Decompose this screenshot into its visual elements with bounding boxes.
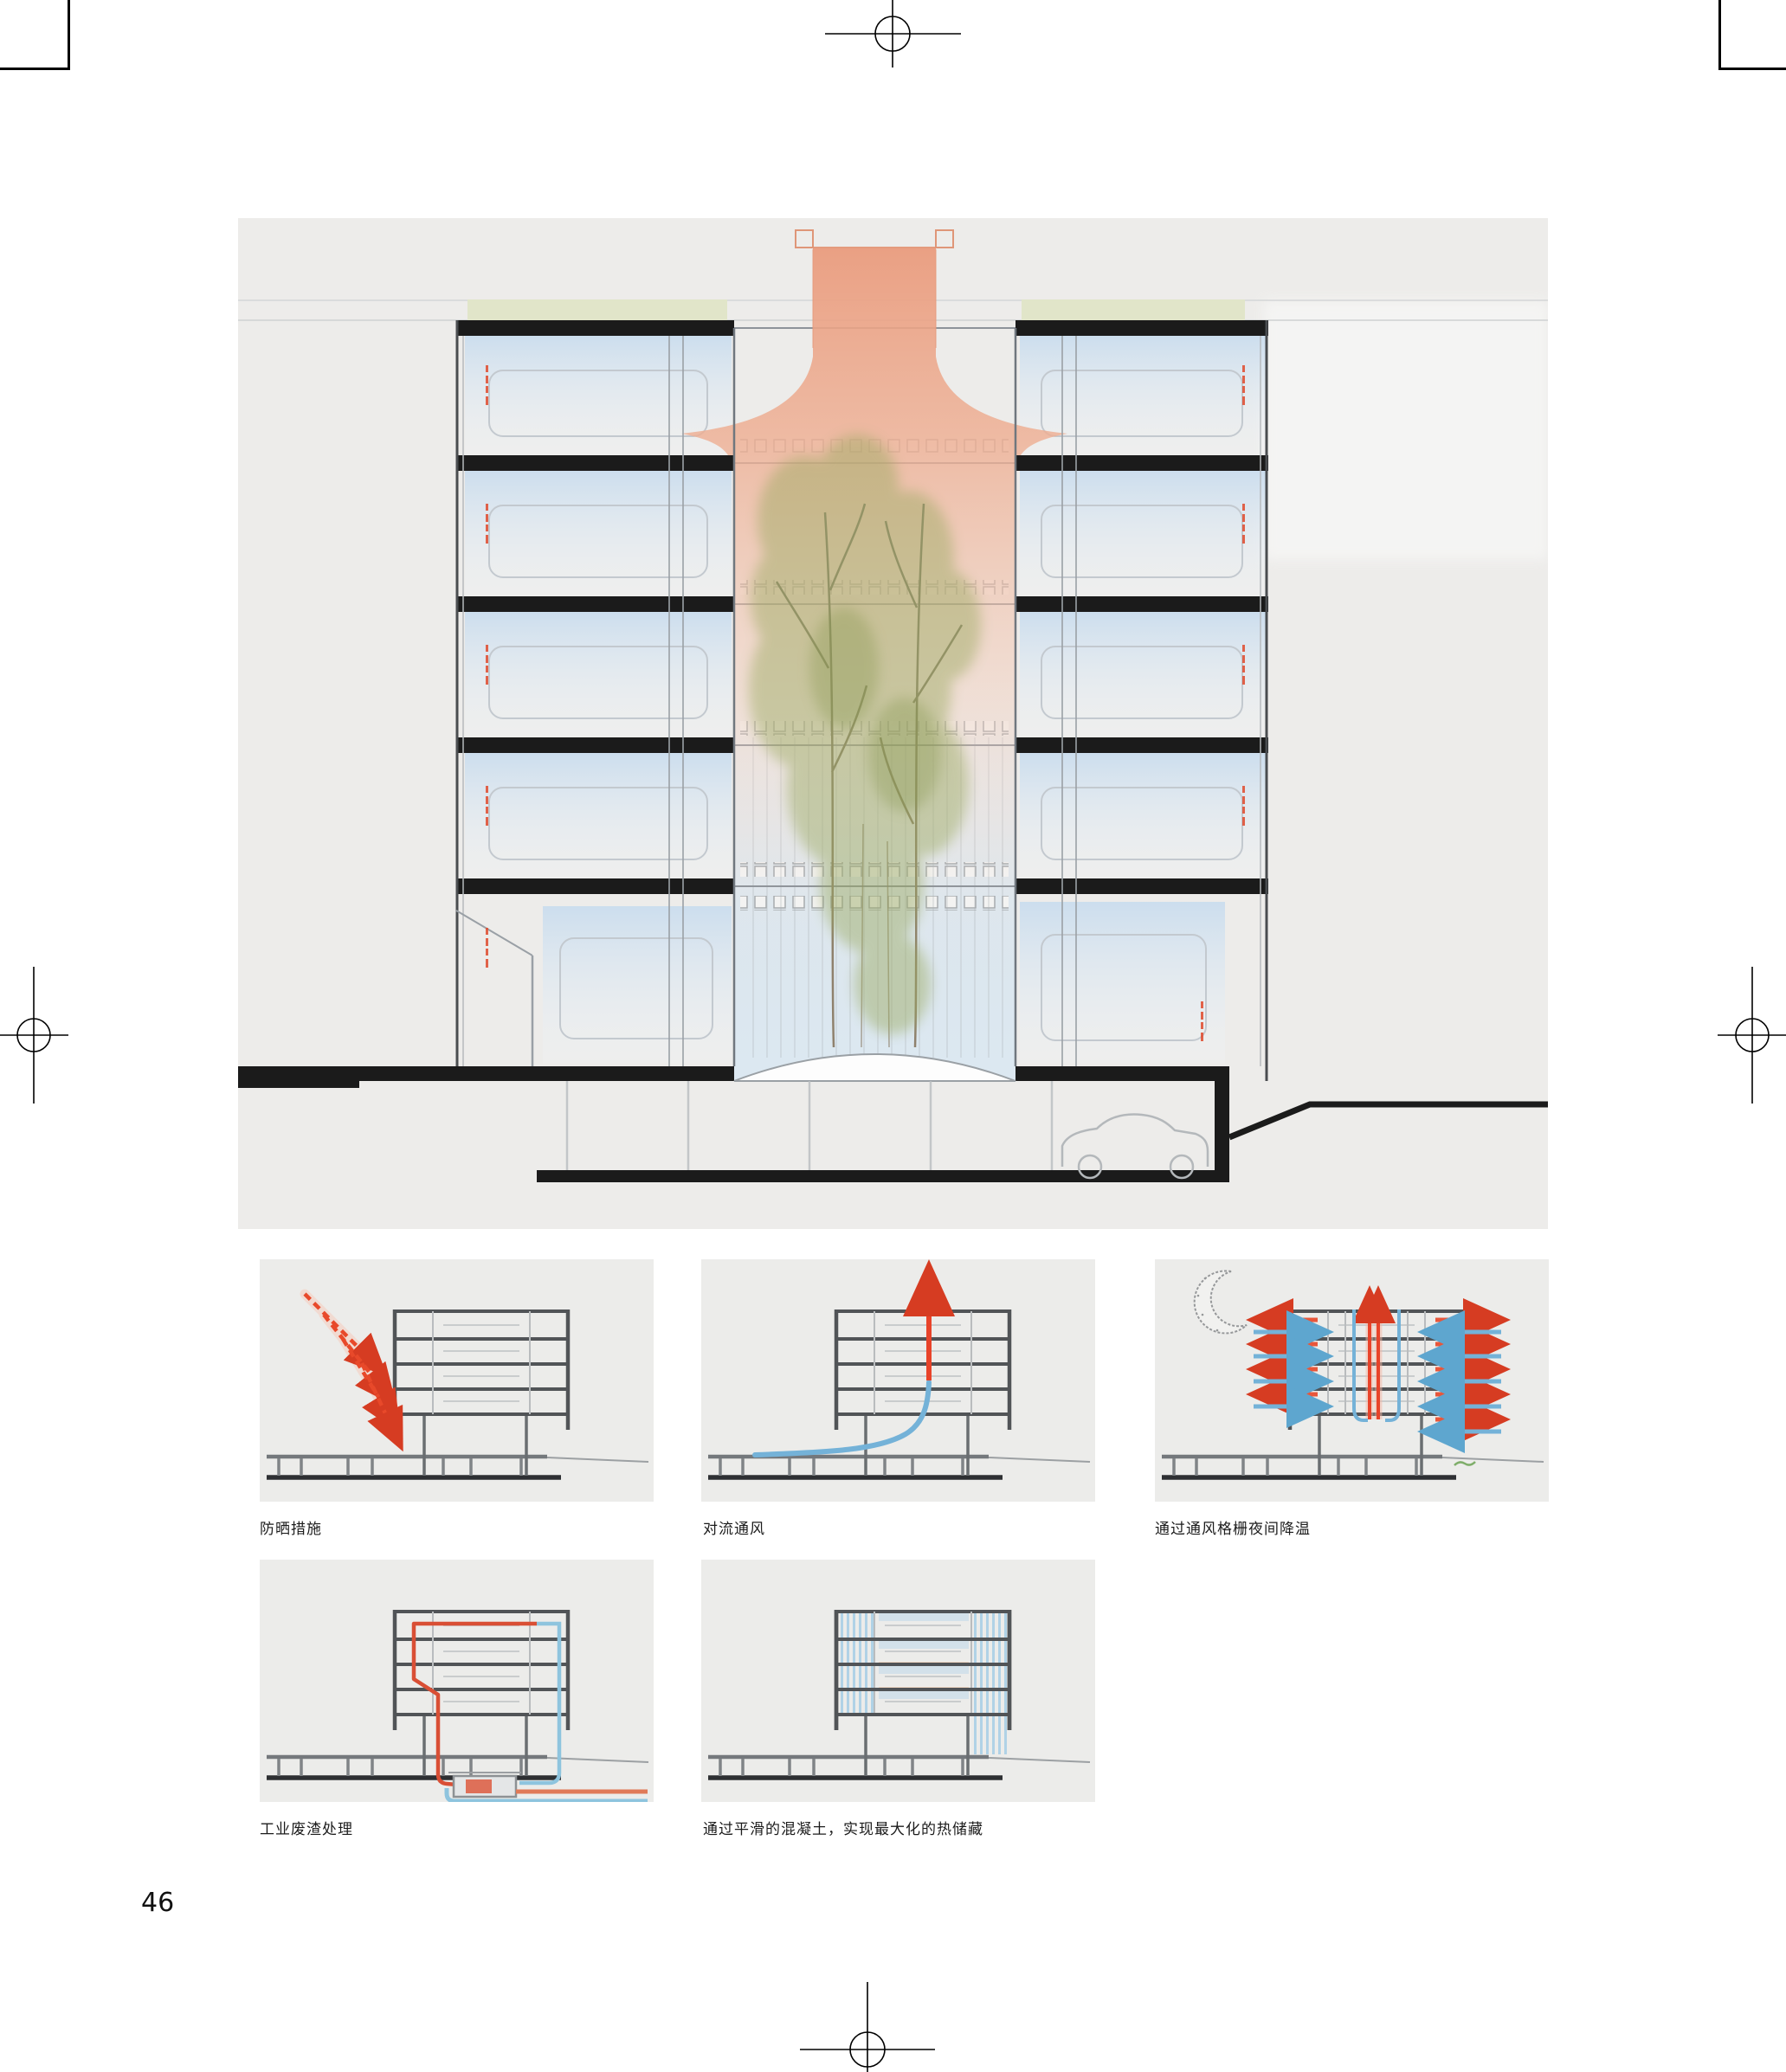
diagram-thermal-storage — [701, 1560, 1095, 1802]
registration-mark-right — [1708, 961, 1786, 1110]
caption-sun-protection: 防晒措施 — [260, 1516, 322, 1538]
diagram-night-cooling — [1155, 1259, 1549, 1502]
registration-square-top-left — [0, 0, 70, 70]
book-page: { "page": { "number": "46" }, "diagrams"… — [0, 0, 1786, 2072]
page-number: 46 — [141, 1888, 174, 1918]
registration-mark-bottom-center — [790, 1976, 950, 2072]
registration-square-top-right — [1718, 0, 1786, 70]
diagram-convective-ventilation — [701, 1259, 1095, 1502]
caption-thermal-storage: 通过平滑的混凝土，实现最大化的热储藏 — [703, 1817, 983, 1838]
caption-night-cooling: 通过通风格栅夜间降温 — [1155, 1516, 1311, 1538]
main-section-figure — [238, 218, 1548, 1229]
registration-mark-left — [0, 961, 78, 1110]
diagram-industrial-waste-heat — [260, 1560, 654, 1802]
diagram-sun-protection — [260, 1259, 654, 1502]
registration-mark-top-center — [814, 0, 974, 78]
caption-convective-ventilation: 对流通风 — [703, 1516, 765, 1538]
caption-industrial-waste-heat: 工业废渣处理 — [260, 1817, 353, 1838]
